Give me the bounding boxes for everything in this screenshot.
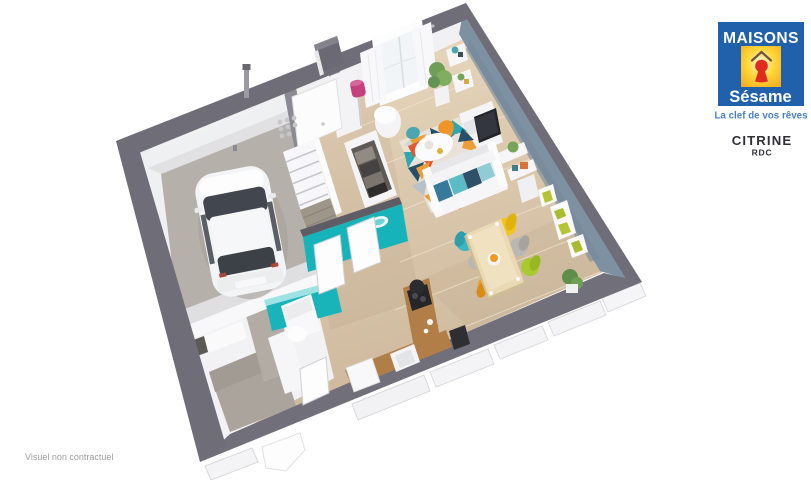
svg-text:La clef de vos rêves: La clef de vos rêves: [714, 111, 808, 122]
svg-text:Sésame: Sésame: [729, 88, 791, 106]
svg-text:CITRINE: CITRINE: [732, 133, 792, 148]
svg-text:Visuel non contractuel: Visuel non contractuel: [25, 452, 113, 462]
svg-text:RDC: RDC: [752, 148, 773, 158]
svg-text:MAISONS: MAISONS: [723, 30, 799, 47]
